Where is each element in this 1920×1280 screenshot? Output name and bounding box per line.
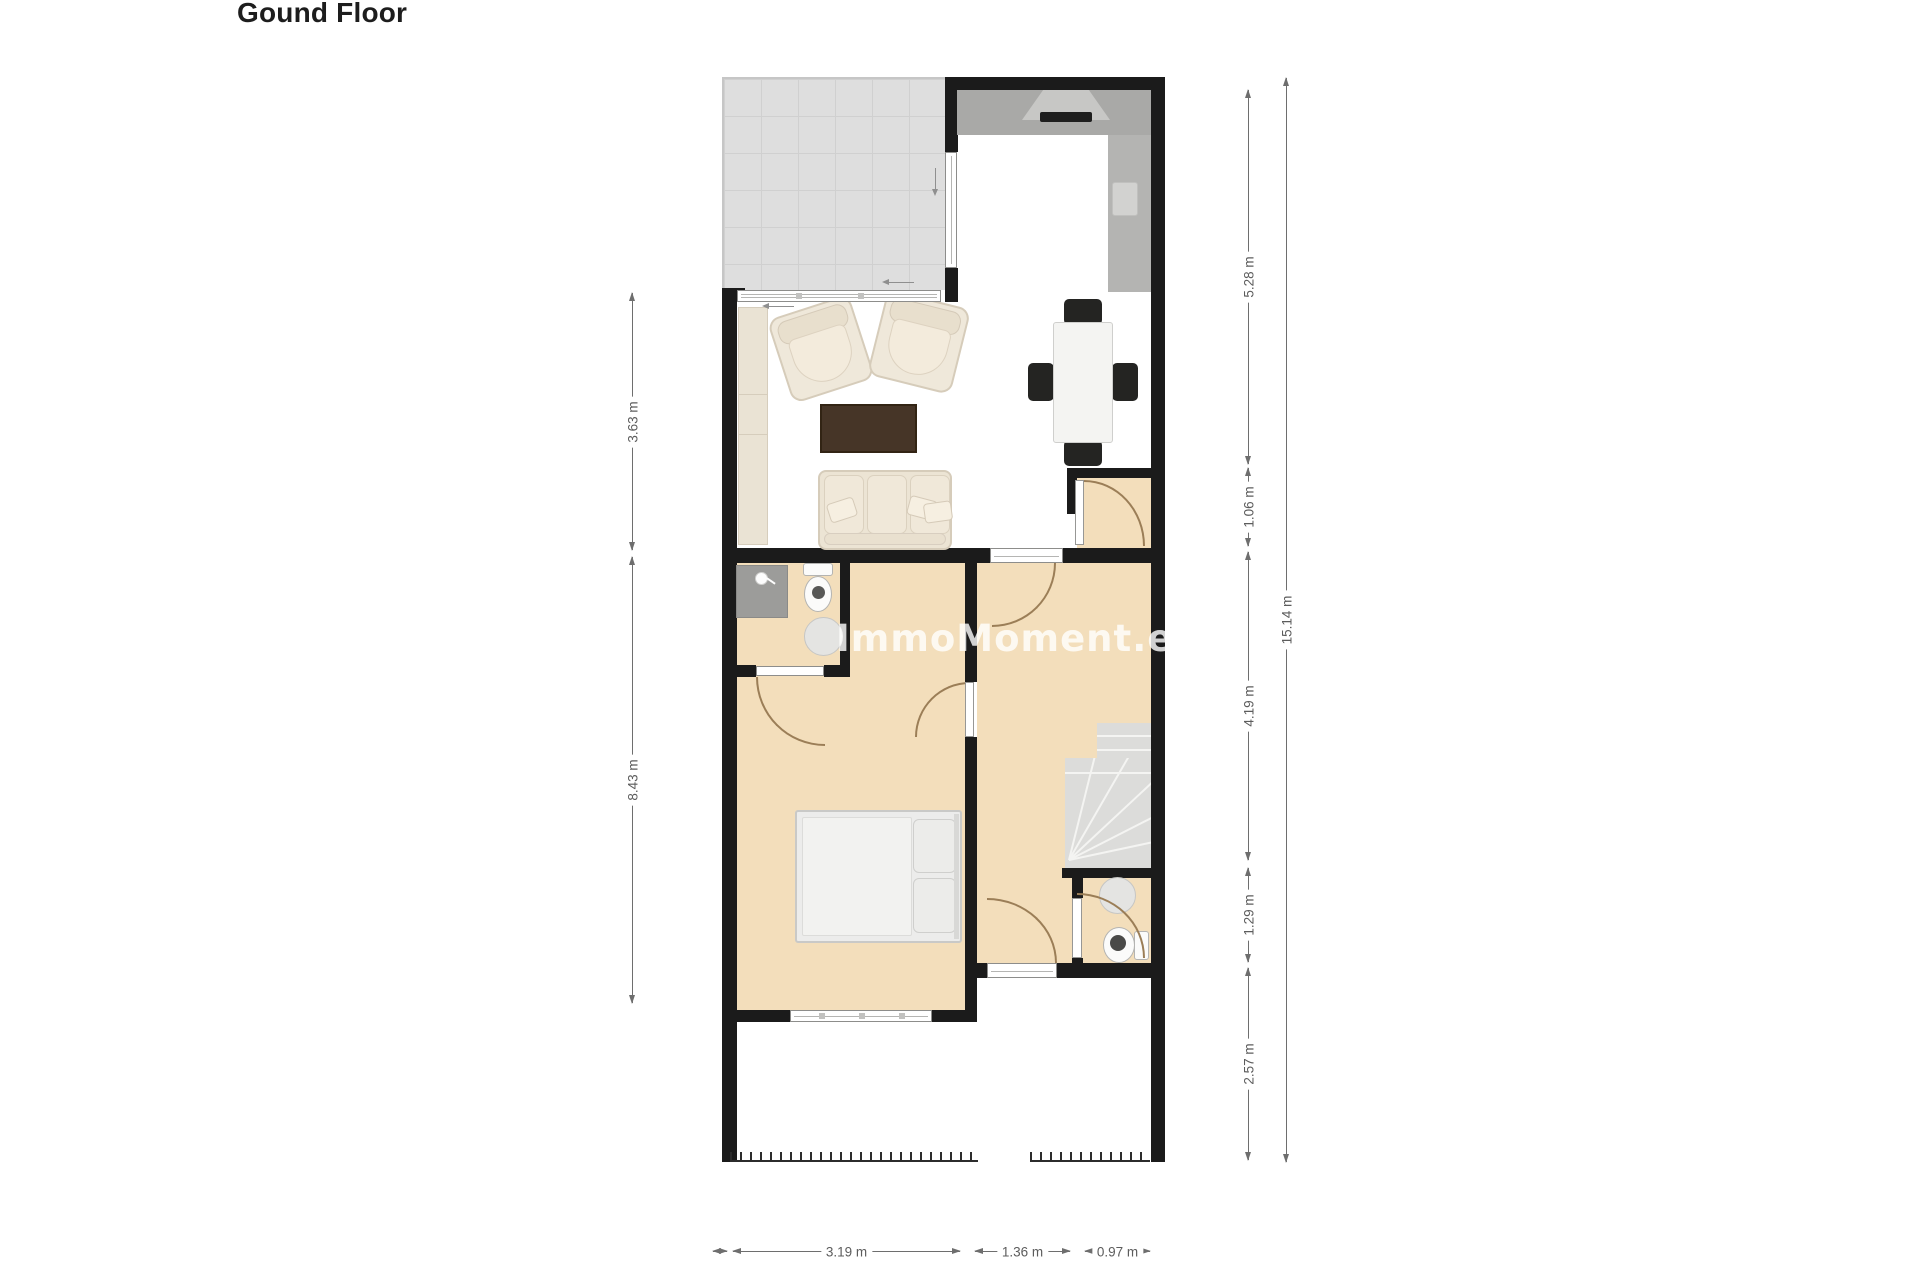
- sofa-front-edge: [824, 533, 946, 545]
- arrow-tip: [762, 303, 769, 309]
- sliding-door-terrace-bottom: [737, 290, 941, 302]
- dimension-line-total: 15.14 m: [1286, 78, 1287, 1162]
- terrace-floor: [722, 77, 945, 290]
- headboard: [954, 814, 959, 939]
- wall-bathroom-bottom-b: [824, 665, 850, 677]
- arrow-tip: [1245, 954, 1251, 963]
- cooktop: [1040, 112, 1092, 122]
- window-mark: [899, 1013, 905, 1019]
- pillow: [913, 878, 956, 933]
- sofa-pillow: [923, 500, 954, 524]
- stair-tread: [1069, 828, 1151, 861]
- double-bed: [795, 810, 962, 943]
- arrow-tip: [1283, 1154, 1289, 1163]
- dimension-line: 0.97 m: [1085, 1251, 1150, 1252]
- dimension-label: 1.29 m: [1240, 889, 1257, 940]
- dimension-label: 4.19 m: [1240, 680, 1257, 731]
- threshold-line: [991, 971, 1053, 972]
- page-title: Gound Floor: [237, 0, 407, 29]
- arrow-tip: [719, 1248, 728, 1254]
- dimension-label: 0.97 m: [1092, 1243, 1143, 1260]
- dimension-line: 3.19 m: [733, 1251, 960, 1252]
- arrow-tip: [1245, 456, 1251, 465]
- sliding-door-terrace-side: [945, 152, 957, 268]
- stair-tread: [1065, 772, 1151, 774]
- sideboard-line: [739, 394, 767, 395]
- wall-living-south: [722, 548, 990, 563]
- wall-wc-left-b: [1072, 958, 1083, 972]
- dimension-line: 1.29 m: [1248, 868, 1249, 962]
- threshold-rear-door: [987, 963, 1057, 978]
- pillow: [913, 819, 956, 873]
- dining-chair: [1112, 363, 1138, 401]
- arrow-tip: [1245, 467, 1251, 476]
- arrow-tip: [1245, 1152, 1251, 1161]
- arrow-tip: [1283, 77, 1289, 86]
- dimension-label: 5.28 m: [1240, 251, 1257, 302]
- arrow-tip: [629, 542, 635, 551]
- stair-tread: [1097, 749, 1151, 751]
- dining-chair: [1028, 363, 1054, 401]
- dimension-line: 1.06 m: [1248, 468, 1249, 546]
- dimension-label: 2.57 m: [1240, 1038, 1257, 1089]
- sofa: [818, 470, 952, 550]
- threshold-bathroom: [756, 666, 824, 676]
- dimension-line: [713, 1251, 727, 1252]
- door-leaf-bedroom: [965, 682, 974, 737]
- arrow-tip: [1142, 1248, 1151, 1254]
- sliding-door-rail: [741, 294, 937, 295]
- arrow-tip: [1245, 867, 1251, 876]
- wc-toilet-bowl-center: [1110, 935, 1126, 951]
- arrow-tip: [629, 995, 635, 1004]
- door-leaf-wc: [1072, 898, 1082, 958]
- threshold-living-hall: [990, 548, 1063, 563]
- threshold-line: [994, 556, 1059, 557]
- sideboard-line: [739, 434, 767, 435]
- arrow-tip: [1062, 1248, 1071, 1254]
- dimension-line: 1.36 m: [975, 1251, 1070, 1252]
- arrow-tip: [629, 556, 635, 565]
- kitchen-sink: [1112, 182, 1138, 216]
- sofa-cushion: [867, 475, 907, 534]
- wall-hall-bedroom-b: [965, 737, 977, 1010]
- dimension-label: 3.19 m: [821, 1243, 872, 1260]
- arrow-tip: [629, 292, 635, 301]
- window-mark: [819, 1013, 825, 1019]
- arrow-tip: [732, 1248, 741, 1254]
- sliding-door-rail: [951, 156, 952, 264]
- arrow-tip: [1245, 852, 1251, 861]
- arrow-tip: [882, 279, 889, 285]
- rear-terrace-boundary: [1030, 1152, 1150, 1162]
- dimension-label: 8.43 m: [624, 754, 641, 805]
- mattress: [802, 817, 912, 936]
- shower: [736, 565, 788, 618]
- dimension-label: 1.06 m: [1240, 481, 1257, 532]
- door-handle: [796, 293, 802, 299]
- wall-hall-bottom-a: [977, 963, 987, 978]
- arrow-tip: [1245, 538, 1251, 547]
- bedroom-window: [790, 1010, 932, 1022]
- window-mark: [859, 1013, 865, 1019]
- dimension-label: 15.14 m: [1278, 591, 1295, 650]
- toilet-tank: [803, 563, 833, 576]
- coffee-table: [820, 404, 917, 453]
- dimension-label: 3.63 m: [624, 396, 641, 447]
- sliding-door-rail: [741, 297, 937, 298]
- slide-arrow-icon: [768, 306, 794, 307]
- dimension-line: 3.63 m: [632, 293, 633, 550]
- arrow-tip: [1245, 551, 1251, 560]
- arrow-tip: [1245, 89, 1251, 98]
- wall-vestibule-top: [1067, 468, 1151, 478]
- arrow-tip: [932, 189, 938, 196]
- arrow-tip: [952, 1248, 961, 1254]
- dimension-line: 8.43 m: [632, 557, 633, 1003]
- dimension-line: 4.19 m: [1248, 552, 1249, 860]
- dining-table: [1053, 322, 1113, 443]
- staircase-upper: [1097, 723, 1151, 763]
- floor-plan-page: Gound Floor: [0, 0, 1920, 1280]
- wall-terrace-right-bottom: [945, 268, 958, 302]
- stair-tread: [1097, 735, 1151, 737]
- slide-arrow-icon: [935, 168, 936, 190]
- arrow-tip: [974, 1248, 983, 1254]
- wall-top: [945, 77, 1165, 90]
- dining-chair: [1064, 440, 1102, 466]
- dimension-line: 2.57 m: [1248, 968, 1249, 1160]
- watermark: ImmoMoment.es: [836, 617, 1196, 660]
- sideboard: [738, 307, 768, 545]
- door-handle: [858, 293, 864, 299]
- wall-bathroom-bottom-a: [736, 665, 756, 677]
- wall-left: [722, 288, 737, 1162]
- arrow-tip: [1245, 967, 1251, 976]
- dimension-line: 5.28 m: [1248, 90, 1249, 464]
- wall-bedroom-bottom-a: [722, 1010, 790, 1022]
- toilet-bowl-center: [812, 586, 825, 599]
- dimension-label: 1.36 m: [997, 1243, 1048, 1260]
- rear-terrace-boundary: [730, 1152, 978, 1162]
- door-leaf-vestibule: [1075, 480, 1084, 545]
- wall-bedroom-bottom-b: [932, 1010, 977, 1022]
- wall-living-south-right: [1063, 548, 1151, 563]
- staircase-winder: [1065, 758, 1151, 868]
- slide-arrow-icon: [888, 282, 914, 283]
- shower-arm-icon: [766, 577, 775, 584]
